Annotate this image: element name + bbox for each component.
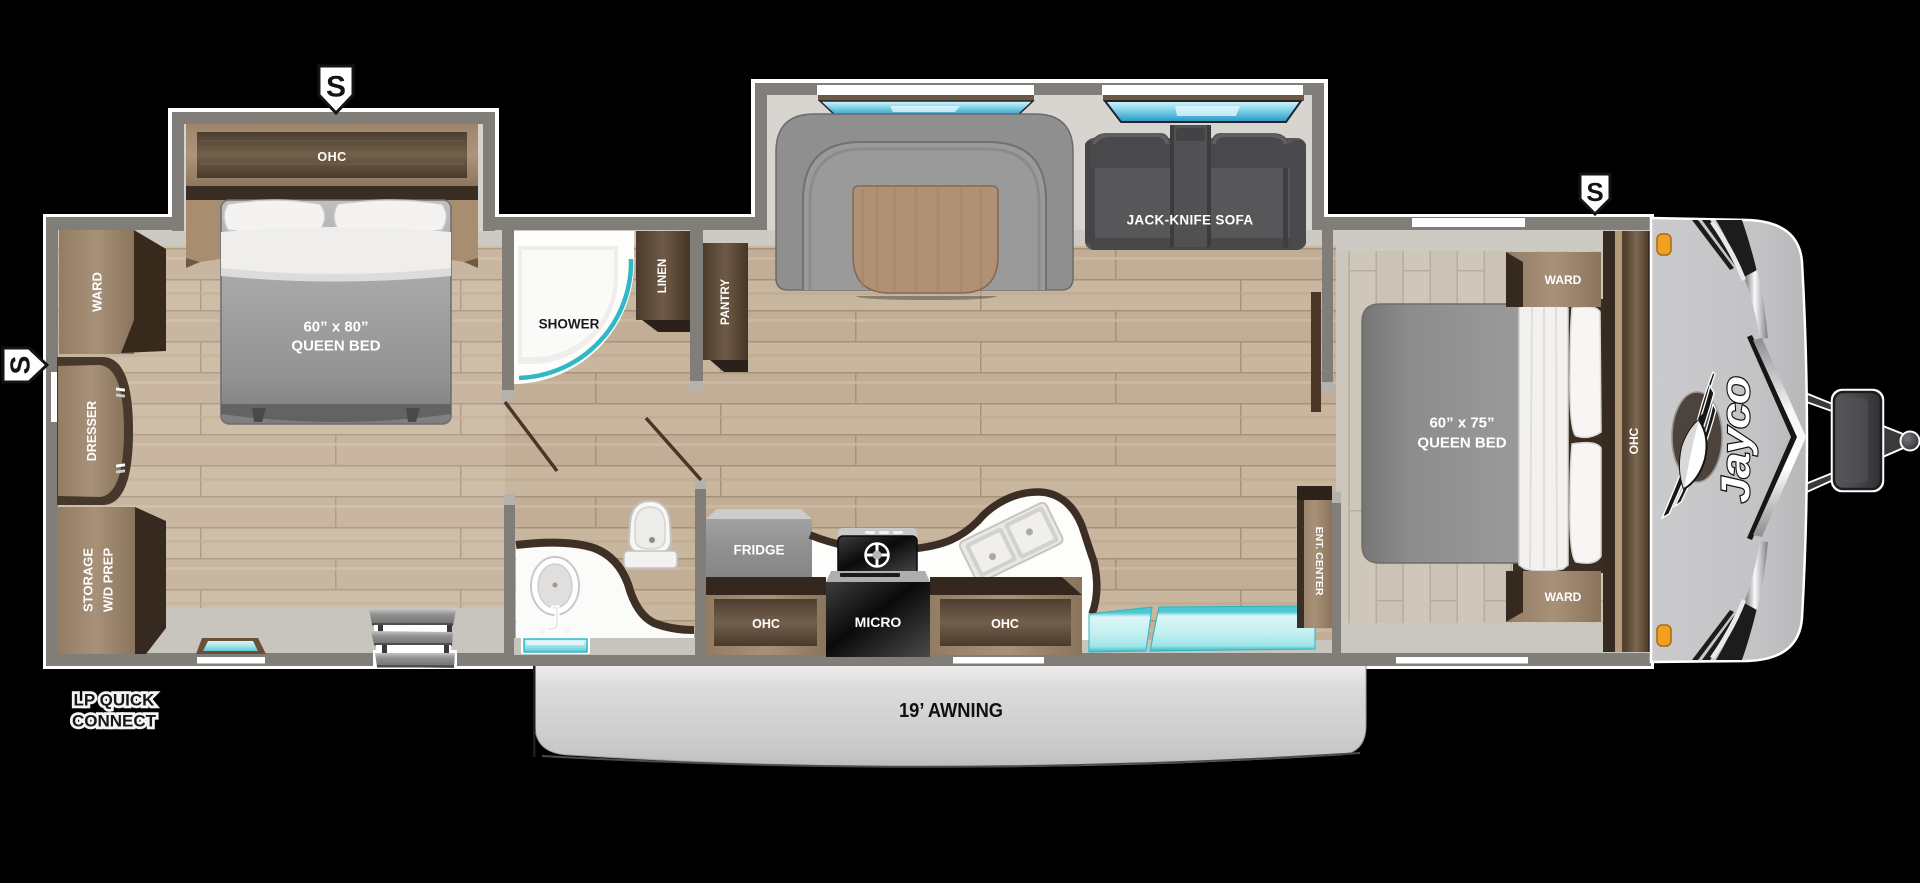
- svg-text:JACK-KNIFE SOFA: JACK-KNIFE SOFA: [1127, 213, 1254, 228]
- svg-text:STORAGE: STORAGE: [81, 548, 96, 612]
- svg-text:FRIDGE: FRIDGE: [733, 543, 784, 558]
- svg-text:MICRO: MICRO: [855, 614, 902, 630]
- svg-text:QUEEN BED: QUEEN BED: [1417, 435, 1506, 452]
- svg-text:S: S: [5, 356, 36, 375]
- svg-text:S: S: [1586, 177, 1603, 207]
- svg-text:ENT. CENTER: ENT. CENTER: [1313, 527, 1325, 596]
- svg-text:OHC: OHC: [752, 617, 780, 631]
- svg-text:S: S: [326, 71, 346, 104]
- svg-text:WARD: WARD: [1545, 273, 1582, 287]
- svg-text:60” x 80”: 60” x 80”: [303, 319, 368, 336]
- svg-text:PANTRY: PANTRY: [720, 279, 732, 325]
- svg-text:W/D PREP: W/D PREP: [101, 548, 116, 613]
- svg-text:OHC: OHC: [991, 617, 1019, 631]
- svg-text:Jayco: Jayco: [1714, 376, 1758, 503]
- svg-text:LINEN: LINEN: [657, 259, 669, 294]
- svg-text:19’ AWNING: 19’ AWNING: [899, 700, 1003, 722]
- svg-text:WARD: WARD: [1545, 590, 1582, 604]
- svg-text:LP QUICK: LP QUICK: [74, 691, 156, 710]
- svg-text:QUEEN BED: QUEEN BED: [291, 338, 380, 355]
- svg-text:DRESSER: DRESSER: [85, 401, 99, 461]
- svg-text:OHC: OHC: [1627, 427, 1641, 454]
- svg-text:WARD: WARD: [90, 272, 105, 312]
- svg-text:OHC: OHC: [317, 150, 346, 164]
- svg-text:CONNECT: CONNECT: [72, 712, 157, 731]
- svg-text:SHOWER: SHOWER: [539, 317, 600, 332]
- svg-text:60” x 75”: 60” x 75”: [1429, 415, 1494, 432]
